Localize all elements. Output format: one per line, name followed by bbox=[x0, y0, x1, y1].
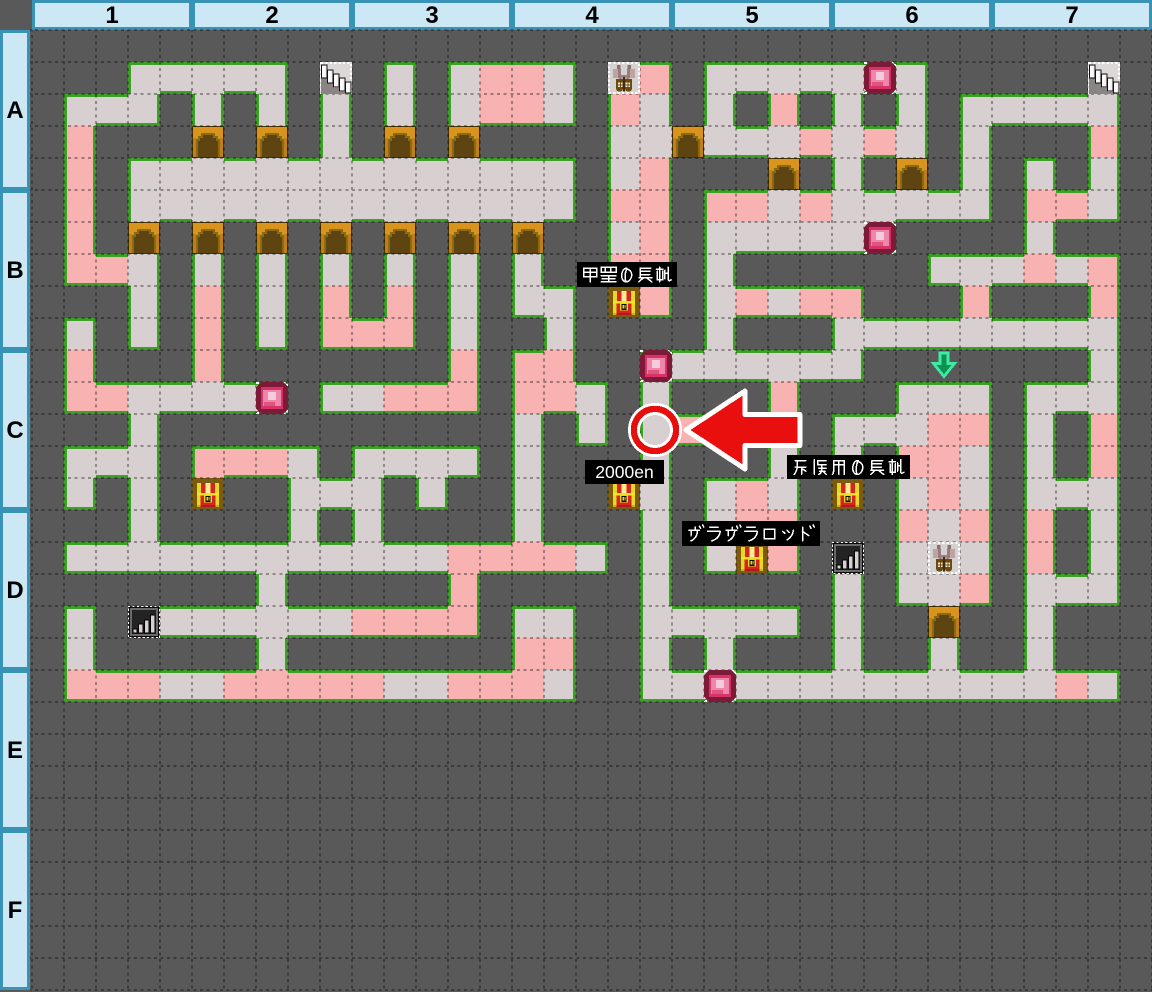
svg-text:A: A bbox=[6, 97, 23, 124]
svg-text:4: 4 bbox=[585, 2, 599, 29]
svg-text:F: F bbox=[8, 897, 23, 924]
svg-text:6: 6 bbox=[905, 2, 918, 29]
svg-text:3: 3 bbox=[425, 2, 438, 29]
svg-text:1: 1 bbox=[105, 2, 118, 29]
svg-text:D: D bbox=[6, 577, 23, 604]
svg-text:E: E bbox=[7, 737, 23, 764]
svg-text:5: 5 bbox=[745, 2, 758, 29]
svg-text:2: 2 bbox=[265, 2, 278, 29]
svg-text:2000en: 2000en bbox=[595, 462, 653, 482]
svg-text:B: B bbox=[6, 257, 23, 284]
svg-text:C: C bbox=[6, 417, 23, 444]
svg-text:7: 7 bbox=[1065, 2, 1078, 29]
